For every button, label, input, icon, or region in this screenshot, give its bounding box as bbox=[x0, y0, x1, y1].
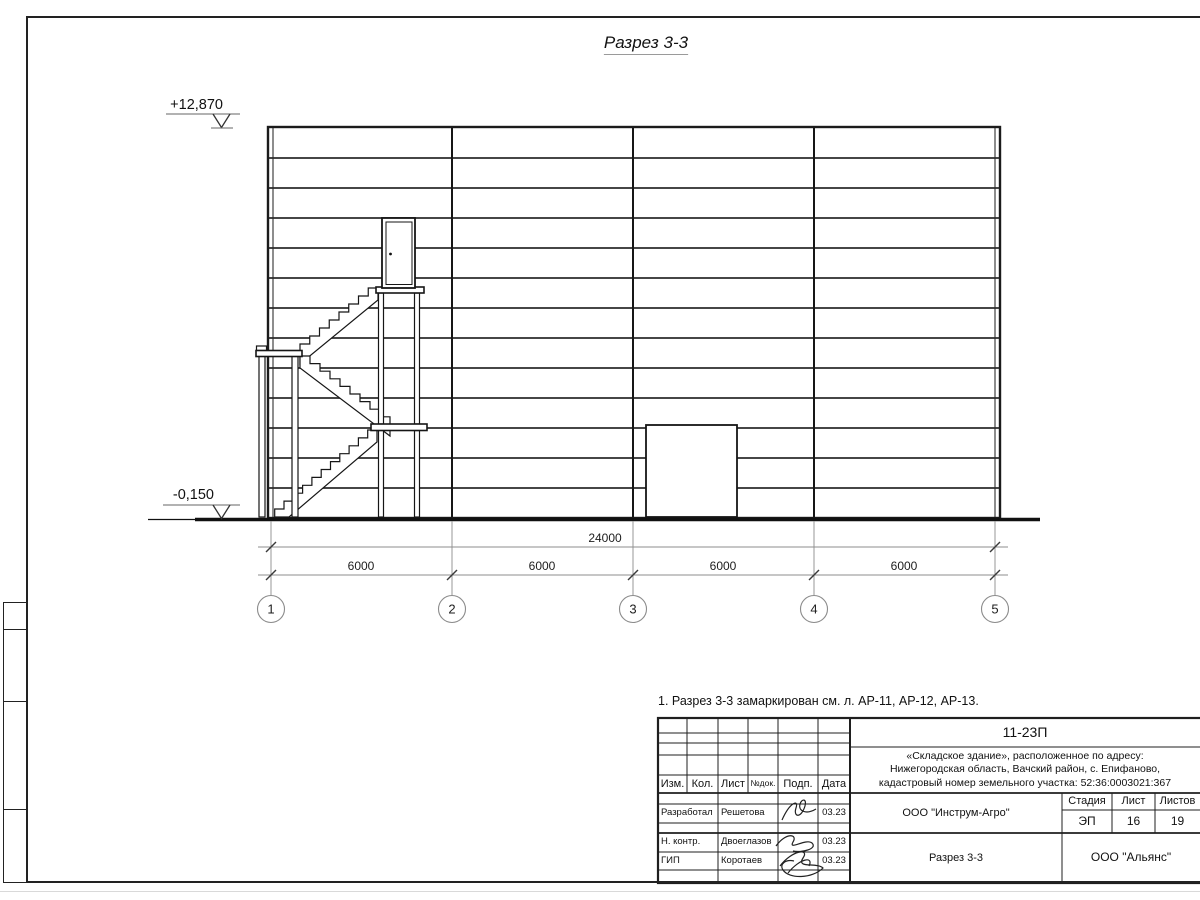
drawing-sheet: +12,870 -0,150 24000 6000 6000 6000 bbox=[0, 0, 1200, 900]
sheet-frame bbox=[26, 16, 1200, 883]
paper-edge bbox=[0, 891, 1200, 892]
binding-strip bbox=[3, 602, 27, 883]
